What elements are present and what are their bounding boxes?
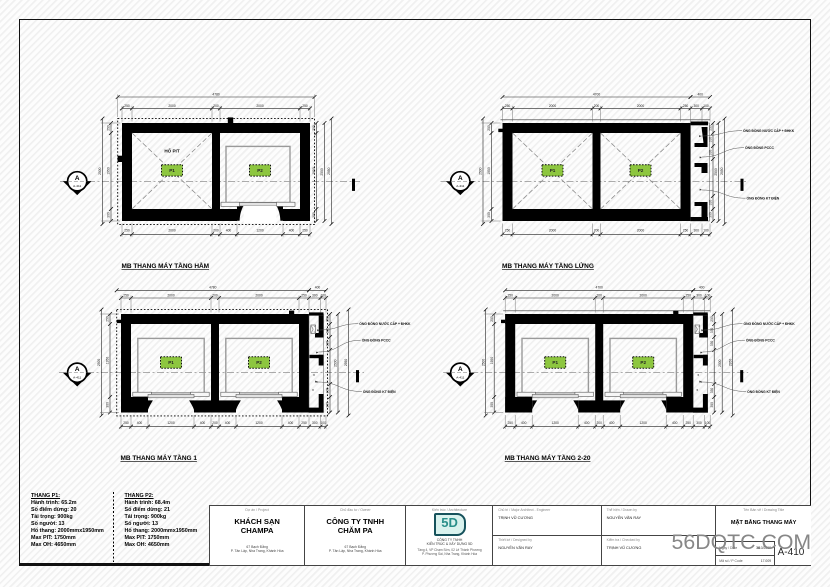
svg-text:2000: 2000 [168, 104, 176, 108]
svg-text:A: A [75, 366, 80, 373]
svg-text:300: 300 [693, 229, 699, 233]
svg-text:250: 250 [326, 316, 330, 322]
svg-text:2950: 2950 [720, 167, 724, 175]
svg-text:250: 250 [123, 293, 129, 297]
svg-text:2000: 2000 [552, 293, 560, 297]
svg-text:2950: 2950 [327, 167, 331, 175]
svg-text:ỐNG ĐỒNG NƯỚC CẤP + ĐHKK: ỐNG ĐỒNG NƯỚC CẤP + ĐHKK [359, 321, 411, 326]
svg-text:300: 300 [693, 104, 699, 108]
svg-text:ỐNG ĐỒNG KT ĐIỆN: ỐNG ĐỒNG KT ĐIỆN [747, 196, 780, 201]
svg-text:1200: 1200 [256, 229, 264, 233]
svg-text:MB THANG MÁY TẦNG LỬNG: MB THANG MÁY TẦNG LỬNG [502, 260, 594, 270]
svg-text:400: 400 [315, 286, 321, 290]
svg-text:P2: P2 [638, 168, 644, 173]
svg-text:300: 300 [696, 293, 702, 297]
svg-text:A-411: A-411 [73, 184, 81, 188]
svg-text:2500: 2500 [714, 168, 718, 176]
svg-text:300: 300 [490, 402, 494, 408]
svg-text:P1: P1 [168, 360, 174, 365]
svg-text:400: 400 [288, 421, 294, 425]
svg-text:250: 250 [106, 316, 110, 322]
svg-text:A-411: A-411 [456, 184, 464, 188]
svg-text:HỐ PIT: HỐ PIT [164, 148, 180, 154]
svg-text:300: 300 [106, 402, 110, 408]
svg-text:2000: 2000 [167, 293, 175, 297]
svg-text:400: 400 [697, 92, 703, 96]
svg-text:250: 250 [683, 229, 689, 233]
svg-text:300: 300 [487, 212, 491, 218]
svg-text:P2: P2 [257, 168, 263, 173]
svg-text:100: 100 [703, 104, 709, 108]
svg-text:250: 250 [302, 229, 308, 233]
svg-text:330: 330 [709, 137, 713, 143]
svg-text:250: 250 [505, 229, 511, 233]
svg-text:200: 200 [596, 421, 602, 425]
svg-text:100: 100 [705, 421, 711, 425]
svg-text:250: 250 [123, 421, 129, 425]
svg-text:2500: 2500 [481, 359, 485, 367]
svg-text:2500: 2500 [479, 167, 483, 175]
svg-text:2500: 2500 [718, 359, 722, 367]
svg-text:1200: 1200 [640, 421, 648, 425]
svg-text:ỐNG ĐỒNG PCCC: ỐNG ĐỒNG PCCC [745, 145, 774, 150]
svg-text:A: A [75, 175, 80, 182]
svg-text:200: 200 [594, 104, 600, 108]
svg-text:1950: 1950 [490, 357, 494, 365]
svg-text:100: 100 [320, 421, 326, 425]
svg-text:4780: 4780 [209, 286, 217, 290]
svg-text:330: 330 [709, 150, 713, 156]
svg-text:2000: 2000 [549, 104, 557, 108]
svg-text:330: 330 [710, 341, 714, 347]
svg-text:250: 250 [685, 293, 691, 297]
svg-text:330: 330 [326, 388, 330, 394]
svg-text:1200: 1200 [552, 421, 560, 425]
svg-text:A: A [458, 175, 463, 182]
svg-text:1950: 1950 [106, 357, 110, 365]
svg-text:250: 250 [124, 104, 130, 108]
svg-text:100: 100 [705, 293, 711, 297]
svg-text:300: 300 [696, 421, 702, 425]
svg-text:MB THANG MÁY TẦNG 2-20: MB THANG MÁY TẦNG 2-20 [505, 452, 591, 462]
svg-text:2500: 2500 [334, 359, 338, 367]
svg-text:400: 400 [672, 421, 678, 425]
svg-text:MB THANG MÁY TẦNG HẦM: MB THANG MÁY TẦNG HẦM [122, 260, 210, 270]
svg-text:250: 250 [302, 104, 308, 108]
svg-text:ỐNG ĐỒNG NƯỚC CẤP + ĐHKK: ỐNG ĐỒNG NƯỚC CẤP + ĐHKK [744, 321, 796, 326]
svg-text:250: 250 [487, 125, 491, 131]
svg-text:250: 250 [107, 125, 111, 131]
svg-text:300: 300 [710, 402, 714, 408]
svg-text:400: 400 [226, 229, 232, 233]
svg-text:200: 200 [212, 421, 218, 425]
svg-text:300: 300 [326, 402, 330, 408]
svg-text:400: 400 [699, 286, 705, 290]
svg-text:2500: 2500 [320, 168, 324, 176]
svg-text:A: A [458, 366, 463, 373]
svg-text:330: 330 [326, 328, 330, 334]
svg-text:200: 200 [212, 293, 218, 297]
svg-text:400: 400 [200, 421, 206, 425]
svg-text:2950: 2950 [728, 359, 732, 367]
svg-text:400: 400 [289, 229, 295, 233]
svg-text:300: 300 [312, 421, 318, 425]
svg-text:P1: P1 [552, 360, 558, 365]
svg-text:ỐNG ĐỒNG KT ĐIỆN: ỐNG ĐỒNG KT ĐIỆN [363, 389, 396, 394]
svg-text:2000: 2000 [168, 229, 176, 233]
svg-text:1200: 1200 [255, 421, 263, 425]
svg-text:200: 200 [594, 229, 600, 233]
svg-text:2000: 2000 [256, 104, 264, 108]
svg-text:2000: 2000 [255, 293, 263, 297]
svg-text:4700: 4700 [596, 286, 604, 290]
svg-text:330: 330 [326, 341, 330, 347]
svg-text:100: 100 [703, 229, 709, 233]
svg-text:ỐNG ĐỒNG NƯỚC CẤP + ĐHKK: ỐNG ĐỒNG NƯỚC CẤP + ĐHKK [743, 128, 795, 133]
svg-text:300: 300 [312, 293, 318, 297]
svg-text:A-411: A-411 [73, 375, 81, 379]
svg-text:400: 400 [521, 421, 527, 425]
svg-text:2500: 2500 [97, 359, 101, 367]
svg-text:200: 200 [213, 229, 219, 233]
svg-text:2000: 2000 [637, 104, 645, 108]
svg-text:1950: 1950 [487, 167, 491, 175]
svg-text:330: 330 [710, 388, 714, 394]
svg-text:400: 400 [584, 421, 590, 425]
svg-text:1950: 1950 [107, 167, 111, 175]
svg-text:4700: 4700 [593, 92, 601, 96]
svg-text:200: 200 [213, 104, 219, 108]
svg-text:ỐNG ĐỒNG PCCC: ỐNG ĐỒNG PCCC [362, 338, 391, 343]
svg-text:250: 250 [709, 125, 713, 131]
svg-text:250: 250 [683, 104, 689, 108]
svg-text:250: 250 [685, 421, 691, 425]
svg-text:330: 330 [709, 200, 713, 206]
svg-text:400: 400 [225, 421, 231, 425]
svg-text:4780: 4780 [212, 92, 220, 96]
svg-text:2000: 2000 [549, 229, 557, 233]
svg-text:P2: P2 [640, 360, 646, 365]
svg-text:400: 400 [137, 421, 143, 425]
svg-text:2000: 2000 [637, 229, 645, 233]
svg-text:250: 250 [507, 293, 513, 297]
svg-text:P2: P2 [256, 360, 262, 365]
svg-text:250: 250 [505, 104, 511, 108]
svg-text:100: 100 [320, 293, 326, 297]
svg-text:250: 250 [507, 421, 513, 425]
svg-text:200: 200 [596, 293, 602, 297]
svg-text:300: 300 [709, 212, 713, 218]
svg-text:A-411: A-411 [456, 375, 464, 379]
svg-text:2000: 2000 [640, 293, 648, 297]
svg-text:ỐNG ĐỒNG KT ĐIỆN: ỐNG ĐỒNG KT ĐIỆN [747, 389, 780, 394]
svg-text:250: 250 [301, 421, 307, 425]
svg-text:400: 400 [609, 421, 615, 425]
svg-text:1200: 1200 [167, 421, 175, 425]
svg-text:250: 250 [124, 229, 130, 233]
svg-text:330: 330 [710, 328, 714, 334]
svg-text:300: 300 [107, 212, 111, 218]
svg-text:250: 250 [490, 316, 494, 322]
svg-text:300: 300 [312, 212, 316, 218]
svg-text:2500: 2500 [98, 167, 102, 175]
svg-text:250: 250 [710, 316, 714, 322]
svg-text:250: 250 [312, 125, 316, 131]
svg-text:2950: 2950 [344, 359, 348, 367]
svg-text:MB THANG MÁY TẦNG 1: MB THANG MÁY TẦNG 1 [121, 452, 198, 462]
svg-text:250: 250 [301, 293, 307, 297]
svg-text:1950: 1950 [312, 167, 316, 175]
svg-text:ỐNG ĐỒNG PCCC: ỐNG ĐỒNG PCCC [746, 338, 775, 343]
svg-text:P1: P1 [550, 168, 556, 173]
svg-text:P1: P1 [169, 168, 175, 173]
